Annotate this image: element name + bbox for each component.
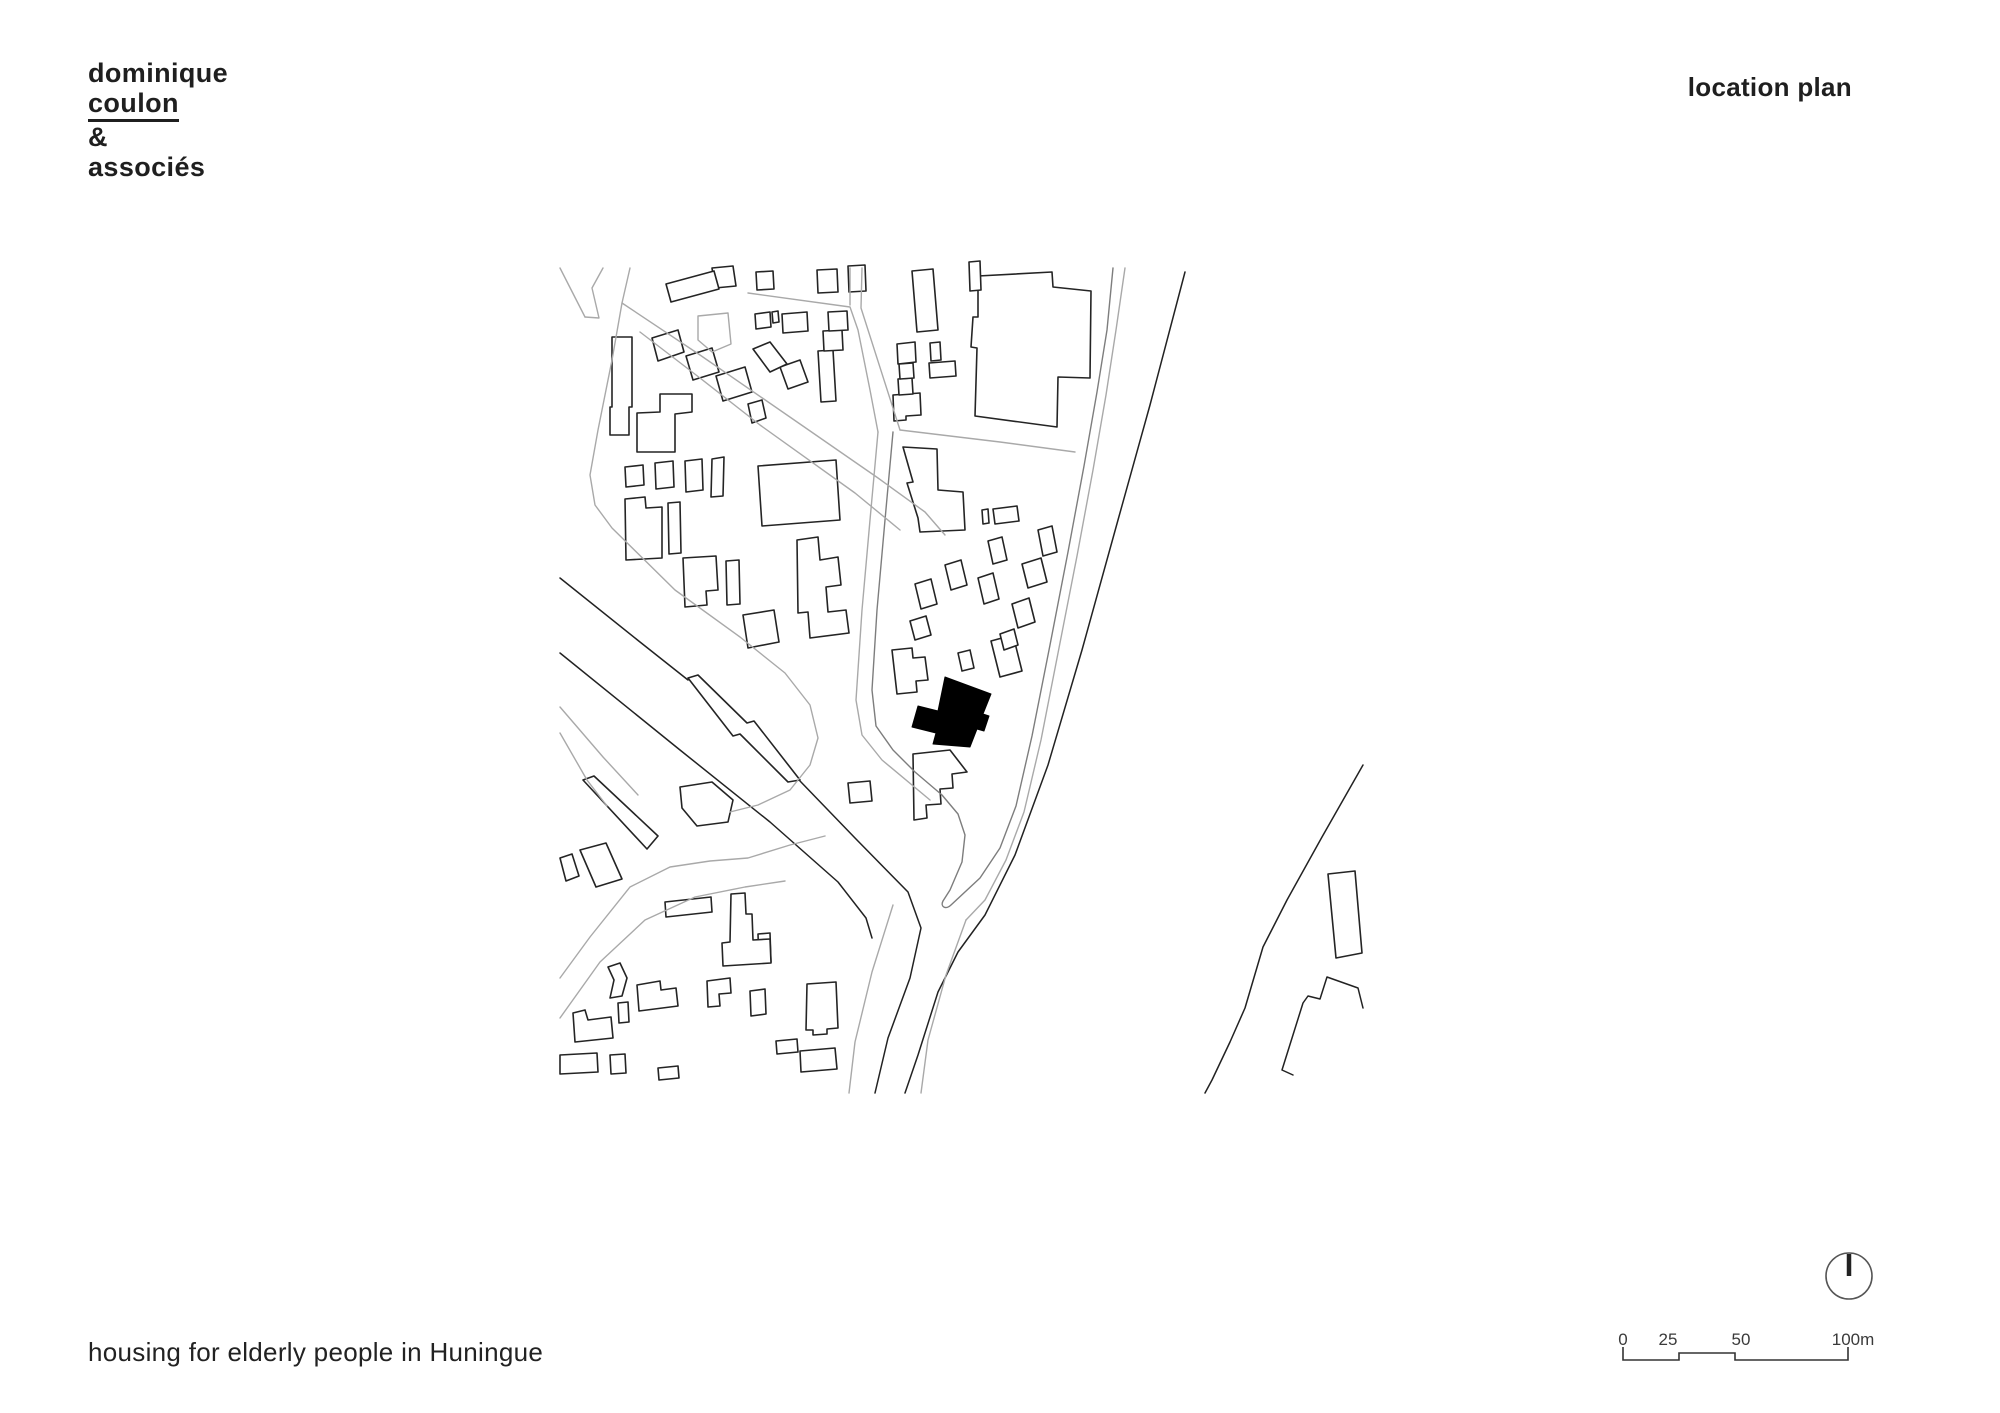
building-footprint: [897, 342, 916, 364]
building-footprint: [750, 989, 766, 1016]
building-footprint: [898, 378, 913, 395]
building-footprint: [958, 650, 974, 671]
north-indicator: [1826, 1253, 1872, 1299]
building-footprint: [782, 312, 808, 333]
building-footprint: [800, 1048, 837, 1072]
building-footprint: [758, 460, 840, 526]
building-footprint: [1038, 526, 1057, 556]
building-footprint: [688, 675, 800, 782]
building-footprint: [848, 781, 872, 803]
street-line: [921, 920, 966, 1093]
railway-line: [560, 578, 688, 680]
firm-logo-line4: associés: [88, 152, 228, 182]
building-footprint: [583, 776, 658, 849]
building-footprint: [580, 843, 622, 887]
building-footprint: [817, 269, 838, 293]
building-footprint: [685, 459, 703, 492]
building-footprint: [711, 457, 724, 497]
firm-logo-line2: coulon: [88, 88, 179, 122]
building-footprint: [610, 1054, 626, 1074]
building-footprint: [722, 893, 771, 966]
building-footprint: [903, 447, 965, 532]
building-footprint: [666, 271, 719, 302]
building-footprint: [637, 394, 692, 452]
building-footprint: [828, 311, 848, 331]
building-footprint: [680, 782, 733, 826]
building-footprint: [930, 342, 941, 361]
river-bank-line: [1282, 977, 1363, 1075]
building-footprint: [625, 465, 644, 487]
building-footprint: [1022, 558, 1047, 588]
scale-label-100m: 100m: [1832, 1330, 1875, 1350]
building-footprint: [818, 350, 836, 402]
building-footprint: [913, 750, 967, 820]
building-footprint: [993, 506, 1019, 524]
scale-label-0: 0: [1618, 1330, 1627, 1350]
drawing-sheet: dominique coulon & associés location pla…: [0, 0, 2000, 1413]
building-footprint: [637, 981, 678, 1011]
building-footprint: [797, 537, 849, 638]
building-footprint: [668, 502, 681, 554]
building-footprint: [806, 982, 838, 1035]
building-footprint: [655, 461, 674, 489]
building-footprint: [1328, 871, 1362, 958]
scale-label-50: 50: [1732, 1330, 1751, 1350]
building-footprint: [573, 1010, 613, 1042]
building-footprint: [969, 261, 981, 291]
building-footprint: [915, 579, 937, 609]
building-footprint: [929, 361, 956, 378]
building-footprint: [560, 854, 579, 881]
building-footprint: [608, 963, 627, 998]
building-footprint: [776, 1039, 798, 1054]
firm-logo-line3: &: [88, 122, 228, 152]
building-footprint: [716, 367, 752, 401]
building-footprint: [560, 1053, 598, 1074]
building-footprint: [707, 978, 731, 1007]
building-footprint: [618, 1002, 629, 1023]
street-line: [560, 268, 585, 317]
building-footprint: [910, 616, 931, 640]
project-title: housing for elderly people in Huningue: [88, 1337, 543, 1368]
building-footprint: [748, 400, 766, 423]
building-footprint: [893, 393, 921, 421]
building-footprint: [743, 610, 779, 648]
building-footprint: [892, 648, 928, 694]
building-footprint: [726, 560, 740, 605]
location-plan-map: [0, 0, 2000, 1413]
building-footprint: [899, 363, 914, 379]
building-footprint: [945, 560, 967, 590]
firm-logo-line1: dominique: [88, 58, 228, 88]
sheet-title: location plan: [1688, 72, 1852, 103]
railway-line: [800, 781, 921, 1093]
building-footprint: [625, 497, 662, 560]
building-footprint: [755, 312, 771, 329]
building-footprint: [772, 311, 779, 323]
building-footprint: [658, 1066, 679, 1080]
building-footprint: [978, 573, 999, 604]
site-building: [912, 677, 991, 747]
building-footprint: [971, 272, 1091, 427]
building-footprint: [912, 269, 938, 332]
building-footprint: [982, 509, 989, 524]
street-line: [585, 268, 603, 318]
building-footprint: [1012, 598, 1035, 628]
building-footprint: [823, 330, 843, 351]
building-footprint: [756, 271, 774, 290]
firm-logo: dominique coulon & associés: [88, 58, 228, 182]
street-line: [698, 313, 731, 352]
scale-label-25: 25: [1659, 1330, 1678, 1350]
building-footprint: [988, 537, 1007, 564]
